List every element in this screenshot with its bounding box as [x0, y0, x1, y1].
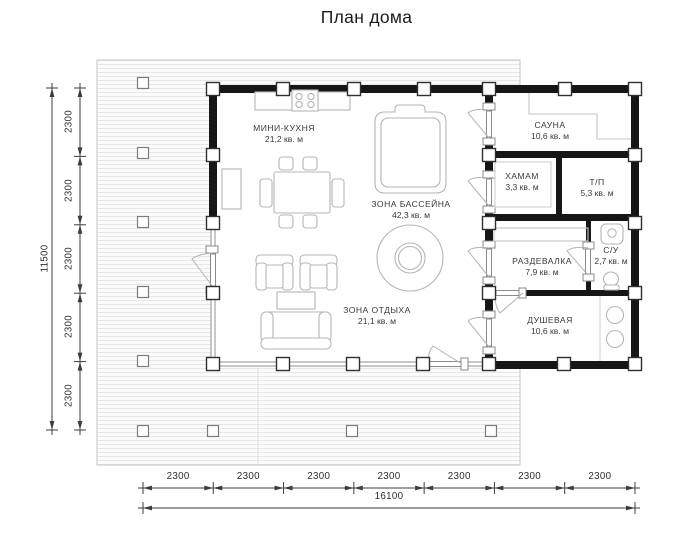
dimension-arrow	[78, 421, 83, 430]
dimension-value: 2300	[64, 100, 75, 144]
armchair	[300, 255, 337, 290]
column	[483, 358, 496, 371]
door-jamb	[483, 277, 495, 284]
door-jamb	[483, 171, 495, 178]
door-jamb	[483, 103, 495, 110]
round-tub	[377, 225, 443, 291]
door-jamb	[483, 138, 495, 145]
dimension-arrow	[626, 506, 635, 511]
wall-hamam-tp-divider	[556, 158, 562, 214]
wall-hamam-floor	[489, 214, 631, 221]
room-area: 42,3 кв. м	[371, 210, 450, 221]
room-label-razdevalka: РАЗДЕВАЛКА 7,9 кв. м	[512, 256, 572, 277]
door-leaf	[429, 362, 461, 367]
terrace-post	[138, 287, 149, 298]
dimension-arrow	[626, 486, 635, 491]
dimension-arrow	[213, 486, 222, 491]
dimension-value: 2300	[64, 305, 75, 349]
room-area: 5,3 кв. м	[580, 188, 613, 199]
coffee-table	[277, 292, 315, 309]
room-area: 3,3 кв. м	[505, 182, 539, 193]
dimension-value: 2300	[297, 471, 341, 482]
column	[483, 217, 496, 230]
dimension-arrow	[78, 216, 83, 225]
dimension-arrow	[50, 421, 55, 430]
dimension-arrow	[143, 486, 152, 491]
room-name: ХАМАМ	[505, 171, 539, 182]
dimension-arrow	[494, 486, 503, 491]
dimension-arrow	[204, 486, 213, 491]
room-name: Т/П	[580, 177, 613, 188]
terrace-post	[138, 78, 149, 89]
room-name: РАЗДЕВАЛКА	[512, 256, 572, 267]
room-label-pool: ЗОНА БАССЕЙНА 42,3 кв. м	[371, 199, 450, 220]
column	[347, 358, 360, 371]
room-area: 10,6 кв. м	[531, 131, 569, 142]
glass-wall-bottom	[217, 362, 428, 366]
dimension-arrow	[78, 284, 83, 293]
door-leaf	[586, 249, 591, 274]
terrace-post	[347, 426, 358, 437]
floor-plan-drawing	[0, 0, 699, 546]
column	[559, 83, 572, 96]
dimension-arrow	[424, 486, 433, 491]
column	[207, 217, 220, 230]
dimension-value: 2300	[64, 237, 75, 281]
sink-icon	[601, 224, 623, 244]
dimension-arrow	[143, 506, 152, 511]
room-name: ДУШЕВАЯ	[527, 315, 573, 326]
wall-sauna-floor	[489, 151, 631, 158]
door-jamb	[483, 206, 495, 213]
terrace-post	[138, 148, 149, 159]
terrace-post	[138, 217, 149, 228]
dimension-arrow	[50, 88, 55, 97]
door-jamb	[483, 241, 495, 248]
column	[277, 83, 290, 96]
door-leaf	[487, 319, 492, 346]
dimension-value: 16100	[367, 491, 411, 502]
dimension-value: 2300	[367, 471, 411, 482]
dimension-value: 2300	[508, 471, 552, 482]
stove-icon	[292, 90, 318, 111]
column	[483, 287, 496, 300]
dining-table	[274, 172, 330, 213]
dimension-arrow	[415, 486, 424, 491]
terrace-post	[138, 426, 149, 437]
toilet-icon	[604, 272, 620, 290]
column	[207, 287, 220, 300]
dimension-arrow	[556, 486, 565, 491]
room-label-dushevaya: ДУШЕВАЯ 10,6 кв. м	[527, 315, 573, 336]
room-name: МИНИ-КУХНЯ	[253, 123, 315, 134]
door-jamb	[461, 358, 468, 370]
dimension-arrow	[284, 486, 293, 491]
column	[629, 287, 642, 300]
dimension-arrow	[565, 486, 574, 491]
column	[207, 83, 220, 96]
room-name: ЗОНА ОТДЫХА	[343, 305, 411, 316]
room-label-rest: ЗОНА ОТДЫХА 21,1 кв. м	[343, 305, 411, 326]
column	[348, 83, 361, 96]
dimension-value: 2300	[226, 471, 270, 482]
column	[207, 149, 220, 162]
dimension-arrow	[485, 486, 494, 491]
room-area: 2,7 кв. м	[594, 256, 627, 267]
terrace-post	[208, 426, 219, 437]
dimension-arrow	[78, 225, 83, 234]
door-jamb	[483, 311, 495, 318]
door-leaf	[487, 111, 492, 137]
dimension-value: 2300	[578, 471, 622, 482]
dimension-arrow	[354, 486, 363, 491]
dimension-arrow	[78, 293, 83, 302]
column	[629, 83, 642, 96]
column	[629, 217, 642, 230]
armchair	[256, 255, 293, 290]
terrace-post	[486, 426, 497, 437]
room-area: 21,1 кв. м	[343, 316, 411, 327]
dimension-value: 2300	[156, 471, 200, 482]
pool	[375, 105, 446, 193]
door-leaf	[487, 179, 492, 205]
column	[483, 83, 496, 96]
room-label-tp: Т/П 5,3 кв. м	[580, 177, 613, 198]
wall-razd-dush-divider	[523, 290, 631, 296]
room-name: ЗОНА БАССЕЙНА	[371, 199, 450, 210]
column	[277, 358, 290, 371]
dimension-arrow	[78, 353, 83, 362]
door-jamb	[483, 347, 495, 354]
terrace-post	[138, 356, 149, 367]
dimension-value: 2300	[64, 373, 75, 417]
dimension-arrow	[78, 147, 83, 156]
column	[418, 83, 431, 96]
room-area: 10,6 кв. м	[527, 326, 573, 337]
room-name: САУНА	[531, 120, 569, 131]
room-label-hamam: ХАМАМ 3,3 кв. м	[505, 171, 539, 192]
dimension-arrow	[78, 362, 83, 371]
column	[629, 149, 642, 162]
room-label-kitchen: МИНИ-КУХНЯ 21,2 кв. м	[253, 123, 315, 144]
dimension-value: 11500	[40, 237, 51, 281]
column	[417, 358, 430, 371]
room-label-su: С/У 2,7 кв. м	[594, 245, 627, 266]
door-leaf	[496, 291, 522, 296]
room-label-sauna: САУНА 10,6 кв. м	[531, 120, 569, 141]
dimension-arrow	[275, 486, 284, 491]
dimension-value: 2300	[437, 471, 481, 482]
sideboard	[222, 169, 241, 209]
column	[207, 358, 220, 371]
floor-plan-page: План дома	[0, 0, 699, 546]
dimension-arrow	[78, 156, 83, 165]
door-jamb	[583, 274, 594, 281]
column	[483, 149, 496, 162]
room-area: 7,9 кв. м	[512, 267, 572, 278]
room-area: 21,2 кв. м	[253, 134, 315, 145]
door-jamb	[206, 246, 218, 253]
door-leaf	[211, 254, 216, 286]
door-leaf	[487, 249, 492, 276]
room-name: С/У	[594, 245, 627, 256]
sofa	[261, 312, 331, 349]
dimension-arrow	[78, 88, 83, 97]
column	[629, 358, 642, 371]
dimension-value: 2300	[64, 168, 75, 212]
dimension-arrow	[345, 486, 354, 491]
column	[558, 358, 571, 371]
kitchen-counter	[255, 90, 350, 111]
